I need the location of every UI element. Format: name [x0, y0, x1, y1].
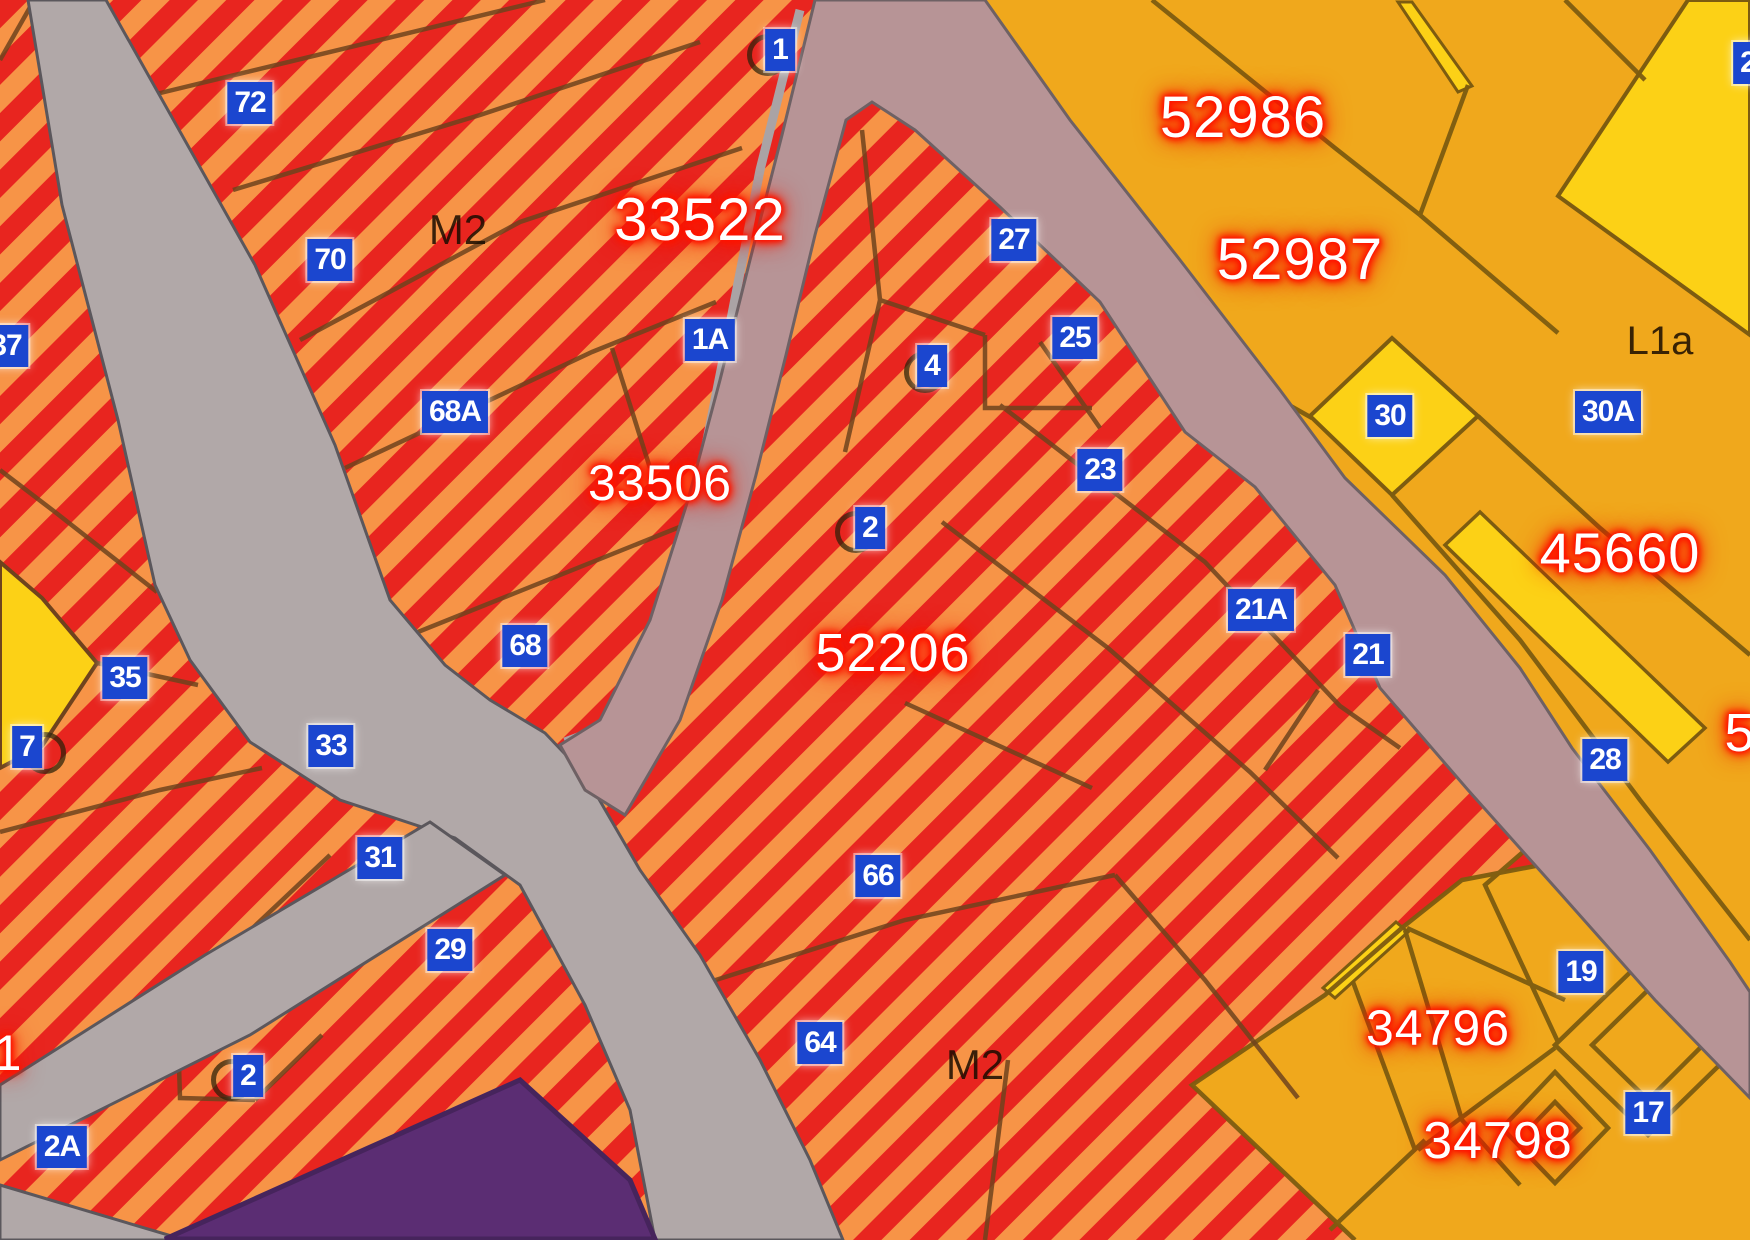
address-badge-21a[interactable]: 21A: [1228, 589, 1294, 631]
label-overlay: 3352233506522065298652987456603479634798…: [0, 0, 1750, 1240]
address-badge-7[interactable]: 7: [12, 726, 42, 768]
parcel-id-label[interactable]: 34798: [1423, 1115, 1573, 1167]
address-badge-19[interactable]: 19: [1558, 951, 1603, 993]
address-badge-37[interactable]: 37: [0, 325, 29, 367]
address-badge-17[interactable]: 17: [1625, 1092, 1670, 1134]
address-badge-66[interactable]: 66: [855, 855, 900, 897]
address-badge-68a[interactable]: 68A: [422, 391, 488, 433]
parcel-id-label[interactable]: 34796: [1366, 1003, 1510, 1053]
address-badge-30[interactable]: 30: [1367, 395, 1412, 437]
address-badge-64[interactable]: 64: [797, 1022, 842, 1064]
address-badge-2[interactable]: 2: [233, 1055, 263, 1097]
parcel-id-label[interactable]: 52206: [815, 626, 970, 680]
parcel-id-label[interactable]: 1: [0, 1028, 22, 1078]
zoning-code-label: M2: [429, 209, 487, 251]
address-badge-25[interactable]: 25: [1052, 317, 1097, 359]
address-badge-2[interactable]: 2: [855, 507, 885, 549]
zoning-code-label: M2: [946, 1044, 1004, 1086]
parcel-id-label[interactable]: 33522: [614, 190, 786, 250]
address-badge-28[interactable]: 28: [1582, 739, 1627, 781]
address-badge-1a[interactable]: 1A: [685, 319, 735, 361]
address-badge-1[interactable]: 1: [765, 29, 795, 71]
parcel-id-label[interactable]: 45660: [1540, 525, 1701, 581]
address-badge-2[interactable]: 2: [1733, 42, 1750, 84]
parcel-id-label[interactable]: 52987: [1217, 231, 1383, 289]
parcel-id-label[interactable]: 52986: [1160, 89, 1326, 147]
address-badge-68[interactable]: 68: [502, 625, 547, 667]
address-badge-27[interactable]: 27: [991, 219, 1036, 261]
address-badge-70[interactable]: 70: [307, 239, 352, 281]
address-badge-72[interactable]: 72: [227, 82, 272, 124]
parcel-id-label[interactable]: 33506: [588, 458, 732, 508]
address-badge-4[interactable]: 4: [917, 345, 947, 387]
zoning-code-label: L1a: [1627, 321, 1694, 361]
address-badge-21[interactable]: 21: [1345, 634, 1390, 676]
parcel-id-label[interactable]: 5: [1724, 706, 1750, 760]
address-badge-33[interactable]: 33: [308, 725, 353, 767]
address-badge-30a[interactable]: 30A: [1575, 391, 1641, 433]
address-badge-29[interactable]: 29: [427, 929, 472, 971]
address-badge-31[interactable]: 31: [357, 837, 402, 879]
address-badge-35[interactable]: 35: [102, 657, 147, 699]
map-viewport[interactable]: 3352233506522065298652987456603479634798…: [0, 0, 1750, 1240]
address-badge-2a[interactable]: 2A: [37, 1126, 87, 1168]
address-badge-23[interactable]: 23: [1077, 449, 1122, 491]
